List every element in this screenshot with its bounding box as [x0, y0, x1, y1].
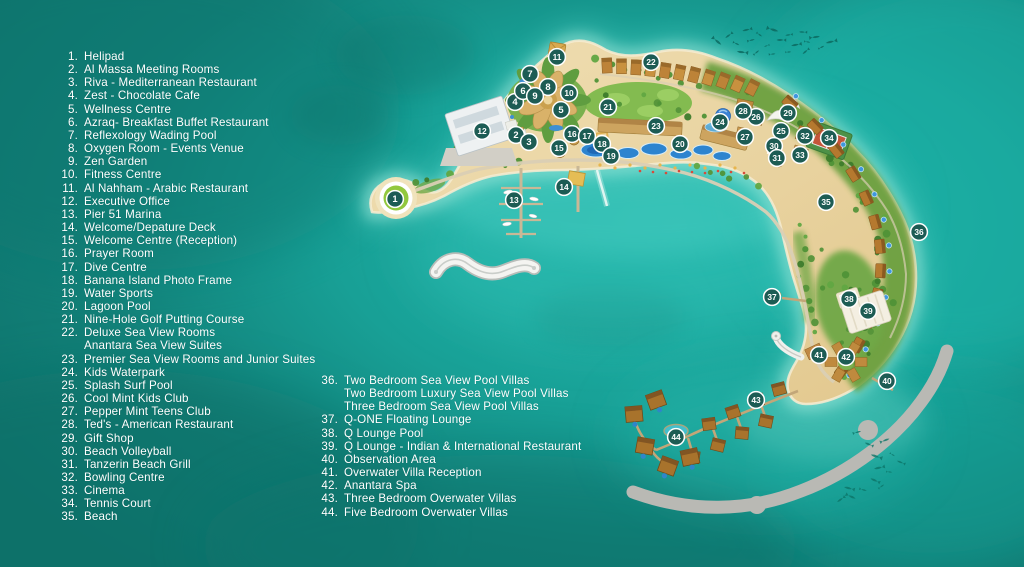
legend-item-14: 14.Welcome/Depature Deck	[40, 221, 315, 234]
svg-text:21: 21	[603, 102, 613, 112]
legend-item-35: 35.Beach	[40, 510, 315, 523]
legend-item-41: 41.Overwater Villa Reception	[300, 466, 581, 479]
legend-item-2: 2.Al Massa Meeting Rooms	[40, 63, 315, 76]
svg-text:18: 18	[597, 139, 607, 149]
svg-text:44: 44	[671, 432, 681, 442]
map-marker-7: 7	[522, 66, 539, 83]
map-marker-29: 29	[780, 105, 797, 122]
svg-text:39: 39	[863, 306, 873, 316]
map-marker-40: 40	[879, 373, 896, 390]
svg-text:15: 15	[554, 143, 564, 153]
legend-item-20: 20.Lagoon Pool	[40, 300, 315, 313]
legend-item-17: 17.Dive Centre	[40, 261, 315, 274]
map-marker-36: 36	[911, 224, 928, 241]
legend-item-28: 28.Ted's - American Restaurant	[40, 418, 315, 431]
svg-text:16: 16	[567, 129, 577, 139]
map-marker-32: 32	[797, 128, 814, 145]
map-marker-16: 16	[564, 126, 581, 143]
map-marker-13: 13	[506, 192, 523, 209]
legend-item-30: 30.Beach Volleyball	[40, 445, 315, 458]
svg-text:7: 7	[527, 68, 532, 79]
legend-item-43: 43.Three Bedroom Overwater Villas	[300, 492, 581, 505]
svg-text:33: 33	[795, 150, 805, 160]
legend-item-37: 37.Q-ONE Floating Lounge	[300, 413, 581, 426]
map-marker-23: 23	[648, 118, 665, 135]
svg-text:28: 28	[738, 106, 748, 116]
legend-item-7: 7.Reflexology Wading Pool	[40, 129, 315, 142]
map-marker-17: 17	[579, 128, 596, 145]
map-marker-39: 39	[860, 303, 877, 320]
svg-text:41: 41	[814, 350, 824, 360]
legend-item-26: 26.Cool Mint Kids Club	[40, 392, 315, 405]
legend-item-38: 38.Q Lounge Pool	[300, 427, 581, 440]
svg-text:22: 22	[646, 57, 656, 67]
legend-item-8: 8.Oxygen Room - Events Venue	[40, 142, 315, 155]
svg-text:19: 19	[606, 151, 616, 161]
svg-text:11: 11	[553, 52, 562, 62]
svg-text:13: 13	[509, 195, 519, 205]
legend-item-10: 10.Fitness Centre	[40, 168, 315, 181]
legend-item-22: 22.Deluxe Sea View Rooms	[40, 326, 315, 339]
legend-item-33: 33.Cinema	[40, 484, 315, 497]
legend-item-15: 15.Welcome Centre (Reception)	[40, 234, 315, 247]
map-marker-31: 31	[769, 150, 786, 167]
map-marker-37: 37	[764, 289, 781, 306]
legend-item-4: 4.Zest - Chocolate Cafe	[40, 89, 315, 102]
legend-item-42: 42.Anantara Spa	[300, 479, 581, 492]
legend-item-19: 19.Water Sports	[40, 287, 315, 300]
map-marker-3: 3	[521, 134, 538, 151]
legend-item-6: 6.Azraq- Breakfast Buffet Restaurant	[40, 116, 315, 129]
legend-item-continuation: Anantara Sea View Suites	[40, 339, 315, 352]
legend-item-29: 29.Gift Shop	[40, 432, 315, 445]
svg-text:34: 34	[824, 133, 834, 143]
legend-item-32: 32.Bowling Centre	[40, 471, 315, 484]
svg-text:12: 12	[477, 126, 487, 136]
svg-text:31: 31	[772, 153, 782, 163]
legend-item-40: 40.Observation Area	[300, 453, 581, 466]
svg-text:29: 29	[783, 108, 793, 118]
resort-map-screen: 1234567891011121314151617181920212223242…	[0, 0, 1024, 567]
map-marker-35: 35	[818, 194, 835, 211]
map-marker-11: 11	[549, 49, 566, 66]
map-marker-33: 33	[792, 147, 809, 164]
legend-item-21: 21.Nine-Hole Golf Putting Course	[40, 313, 315, 326]
legend-item-13: 13.Pier 51 Marina	[40, 208, 315, 221]
map-marker-12: 12	[474, 123, 491, 140]
legend-item-9: 9.Zen Garden	[40, 155, 315, 168]
svg-text:26: 26	[751, 112, 761, 122]
map-marker-44: 44	[668, 429, 685, 446]
map-marker-1: 1	[387, 191, 404, 208]
map-marker-20: 20	[672, 136, 689, 153]
legend-item-continuation: Three Bedroom Sea View Pool Villas	[300, 400, 581, 413]
svg-text:40: 40	[882, 376, 892, 386]
map-marker-9: 9	[527, 88, 544, 105]
legend-item-36: 36.Two Bedroom Sea View Pool Villas	[300, 374, 581, 387]
map-marker-34: 34	[821, 130, 838, 147]
legend-item-3: 3.Riva - Mediterranean Restaurant	[40, 76, 315, 89]
legend-item-5: 5.Wellness Centre	[40, 103, 315, 116]
map-marker-14: 14	[556, 179, 573, 196]
svg-text:38: 38	[844, 294, 854, 304]
svg-text:5: 5	[558, 104, 563, 115]
svg-text:8: 8	[545, 81, 550, 92]
svg-text:1: 1	[392, 193, 397, 204]
map-marker-27: 27	[737, 129, 754, 146]
svg-text:36: 36	[914, 227, 924, 237]
legend-item-1: 1.Helipad	[40, 50, 315, 63]
legend-item-24: 24.Kids Waterpark	[40, 366, 315, 379]
svg-text:42: 42	[841, 352, 851, 362]
map-marker-19: 19	[603, 148, 620, 165]
svg-text:25: 25	[776, 126, 786, 136]
svg-text:37: 37	[767, 292, 777, 302]
svg-text:35: 35	[821, 197, 831, 207]
map-marker-43: 43	[748, 392, 765, 409]
legend-item-44: 44.Five Bedroom Overwater Villas	[300, 506, 581, 519]
svg-text:2: 2	[513, 129, 518, 140]
map-marker-28: 28	[735, 103, 752, 120]
svg-text:17: 17	[582, 131, 592, 141]
marina-dock	[440, 148, 518, 166]
svg-text:10: 10	[564, 88, 574, 98]
svg-text:20: 20	[675, 139, 685, 149]
legend-item-11: 11.Al Nahham - Arabic Restaurant	[40, 182, 315, 195]
svg-text:23: 23	[651, 121, 661, 131]
map-marker-41: 41	[811, 347, 828, 364]
legend-item-27: 27.Pepper Mint Teens Club	[40, 405, 315, 418]
legend-item-25: 25.Splash Surf Pool	[40, 379, 315, 392]
legend-column-1: 1.Helipad2.Al Massa Meeting Rooms3.Riva …	[40, 50, 315, 524]
svg-text:6: 6	[520, 85, 525, 96]
svg-text:24: 24	[715, 117, 725, 127]
map-marker-38: 38	[841, 291, 858, 308]
map-marker-21: 21	[600, 99, 617, 116]
legend-item-31: 31.Tanzerin Beach Grill	[40, 458, 315, 471]
map-marker-10: 10	[561, 85, 578, 102]
legend-column-2: 36.Two Bedroom Sea View Pool VillasTwo B…	[300, 374, 581, 519]
legend-item-12: 12.Executive Office	[40, 195, 315, 208]
legend-item-39: 39.Q Lounge - Indian & International Res…	[300, 440, 581, 453]
legend-item-18: 18.Banana Island Photo Frame	[40, 274, 315, 287]
map-marker-42: 42	[838, 349, 855, 366]
svg-text:3: 3	[526, 136, 531, 147]
legend-item-34: 34.Tennis Court	[40, 497, 315, 510]
legend-item-16: 16.Prayer Room	[40, 247, 315, 260]
svg-text:32: 32	[800, 131, 810, 141]
svg-text:14: 14	[559, 182, 569, 192]
map-marker-24: 24	[712, 114, 729, 131]
map-marker-15: 15	[551, 140, 568, 157]
svg-text:9: 9	[532, 90, 537, 101]
legend-item-continuation: Two Bedroom Luxury Sea View Pool Villas	[300, 387, 581, 400]
map-marker-5: 5	[553, 102, 570, 119]
map-marker-22: 22	[643, 54, 660, 71]
svg-text:27: 27	[740, 132, 750, 142]
map-marker-25: 25	[773, 123, 790, 140]
svg-text:43: 43	[751, 395, 761, 405]
legend-item-23: 23.Premier Sea View Rooms and Junior Sui…	[40, 353, 315, 366]
